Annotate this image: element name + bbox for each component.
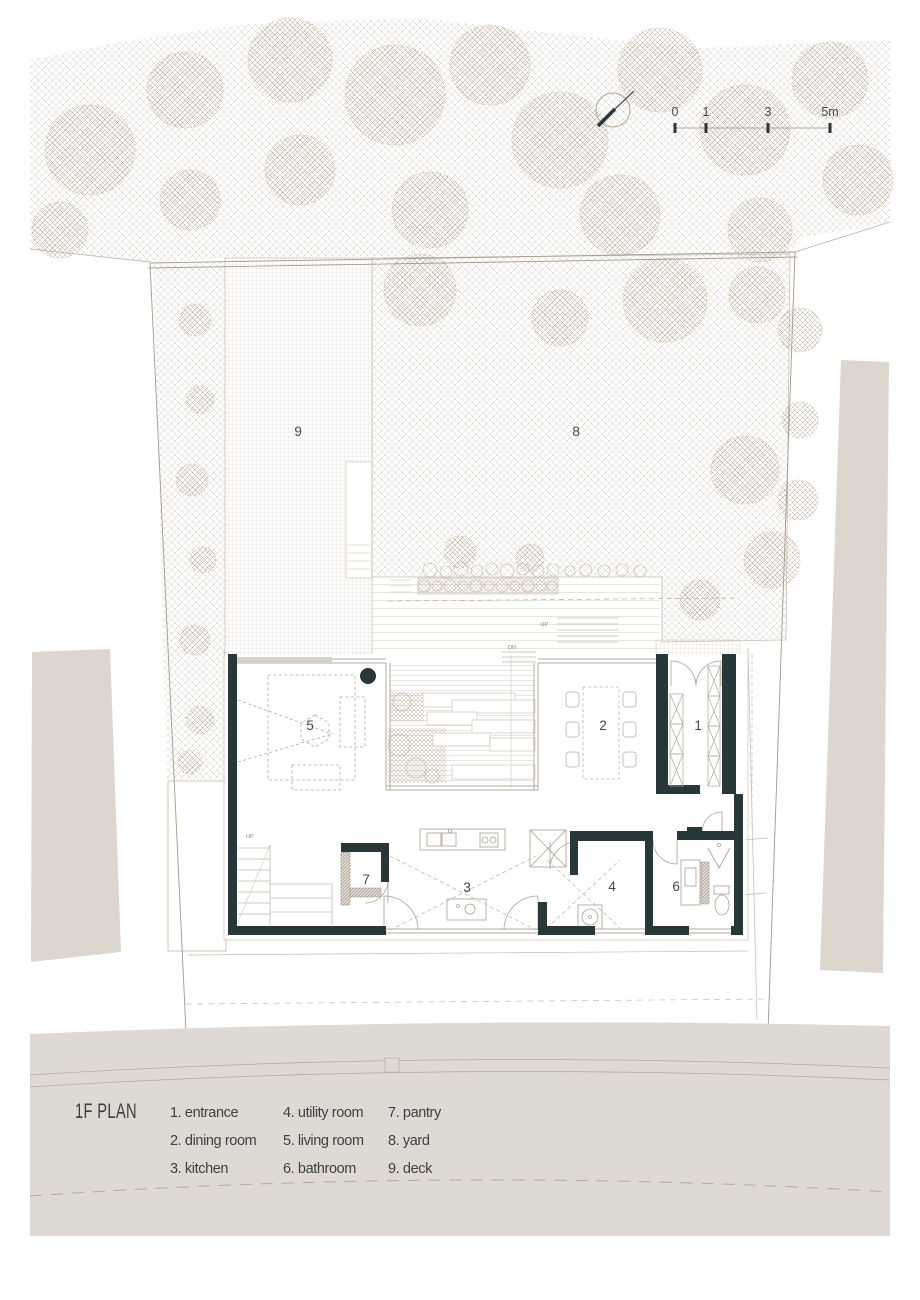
floor-plan-sheet: UP <box>0 0 920 1300</box>
room-label-dining: 2 <box>599 718 606 733</box>
plan-title: 1F PLAN <box>75 1100 137 1123</box>
legend-item-living: 5. living room <box>283 1133 364 1149</box>
room-label-kitchen: 3 <box>463 880 470 895</box>
floor-plan-svg: UP <box>0 0 920 1300</box>
front-terrace-lines <box>186 951 770 1004</box>
deck-area <box>225 258 372 656</box>
entry-path <box>743 648 768 1020</box>
legend-item-utility: 4. utility room <box>283 1105 364 1121</box>
legend-item-bathroom: 6. bathroom <box>283 1161 356 1177</box>
planting-strip-left <box>153 262 226 951</box>
legend-item-kitchen: 3. kitchen <box>170 1161 228 1177</box>
utility-marker <box>385 1058 399 1072</box>
planting-bed <box>418 578 558 594</box>
scale-tick-0: 0 <box>672 105 679 119</box>
legend-item-dining: 2. dining room <box>170 1133 257 1149</box>
room-label-living: 5 <box>306 718 313 733</box>
scale-tick-3: 3 <box>765 105 772 119</box>
scale-tick-1: 1 <box>703 105 710 119</box>
legend-item-deck: 9. deck <box>388 1161 433 1177</box>
deck-side-steps <box>346 462 372 578</box>
scale-tick-5m: 5m <box>821 105 838 119</box>
window-sill <box>232 657 332 662</box>
room-label-utility: 4 <box>608 879 616 894</box>
legend-item-pantry: 7. pantry <box>388 1105 442 1121</box>
column-dot <box>360 668 376 684</box>
neighbor-building-right <box>820 360 889 973</box>
legend-item-entrance: 1. entrance <box>170 1105 238 1121</box>
room-label-bathroom: 6 <box>672 879 679 894</box>
room-label-yard: 8 <box>572 424 579 439</box>
road <box>30 1022 890 1236</box>
steps-up-label: UP <box>540 622 548 628</box>
steps-down-label: DN <box>508 645 516 651</box>
room-label-entrance: 1 <box>694 718 701 733</box>
room-label-deck: 9 <box>294 424 301 439</box>
inner-courtyard-garden: DN <box>386 645 538 790</box>
entrance-porch <box>656 640 740 656</box>
neighbor-building-left <box>31 649 121 962</box>
legend-item-yard: 8. yard <box>388 1133 430 1149</box>
room-label-pantry: 7 <box>362 872 369 887</box>
house: DN UP <box>224 645 748 940</box>
stairs-up-label: UP <box>246 834 254 840</box>
